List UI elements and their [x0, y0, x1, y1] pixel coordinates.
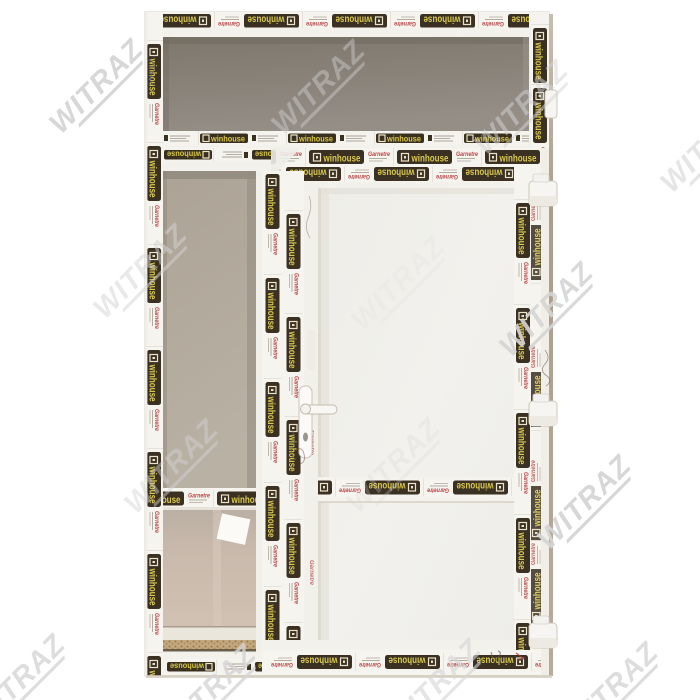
svg-text:Garnetre: Garnetre	[308, 560, 314, 586]
